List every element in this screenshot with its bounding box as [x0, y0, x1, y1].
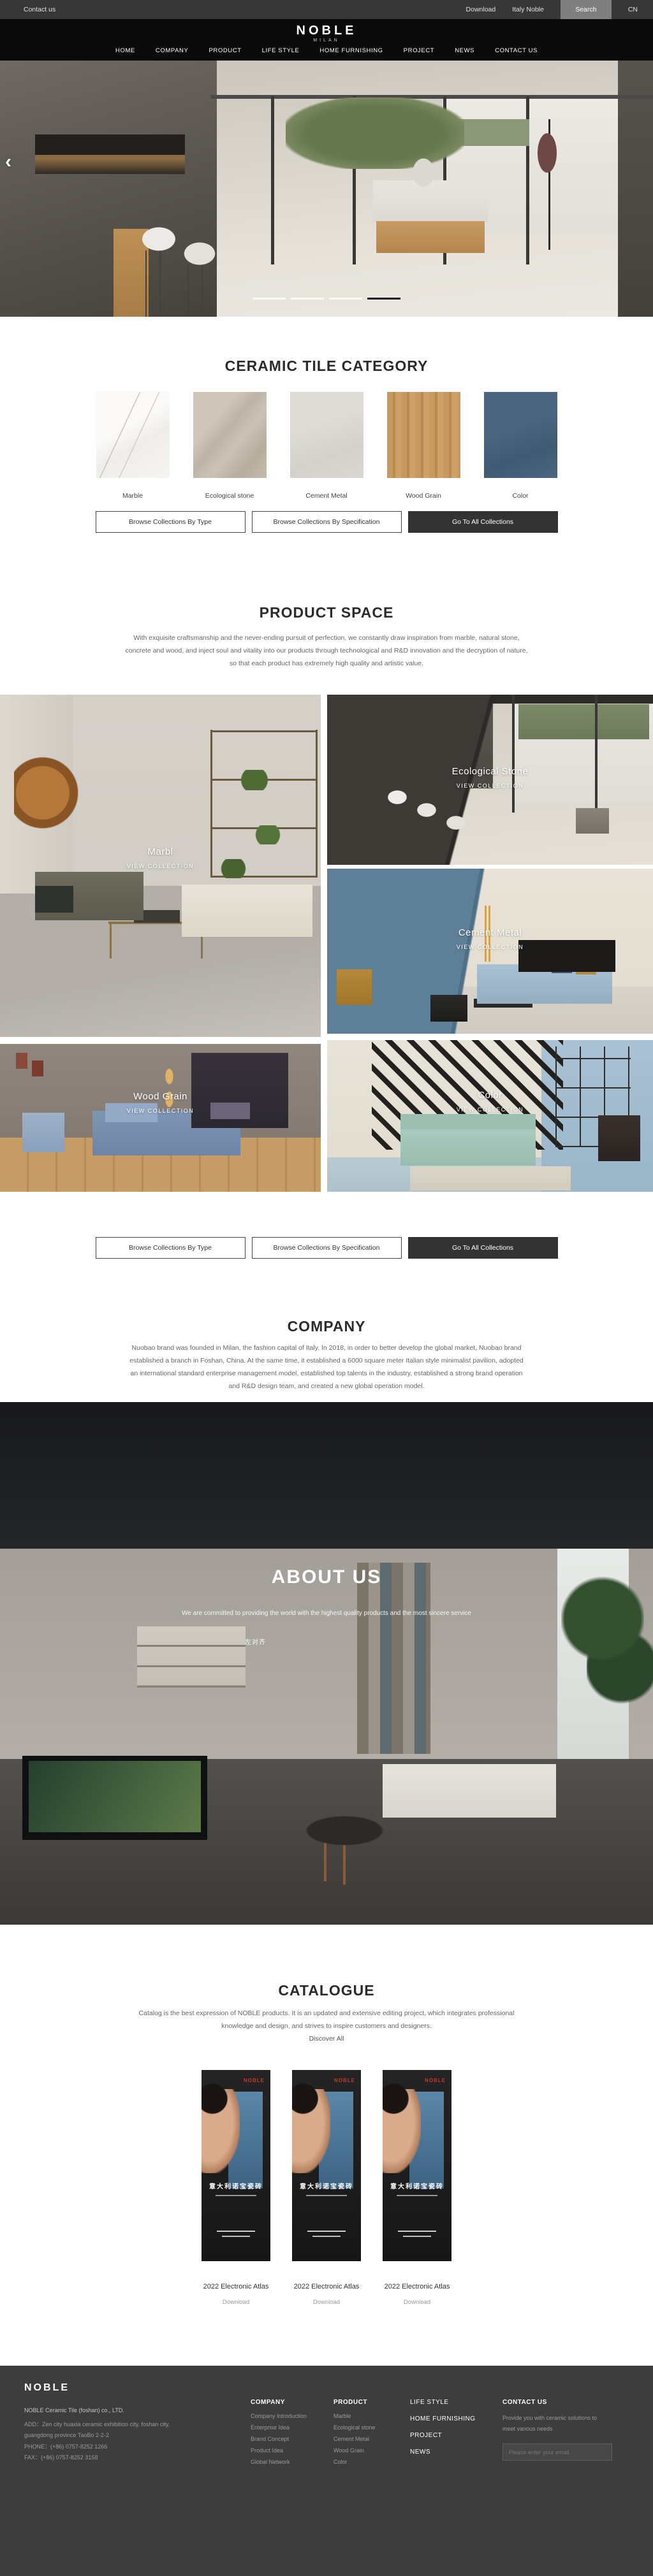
swatch-cement-metal-item: Cement Metal: [290, 392, 363, 500]
footer-link-company-introduction[interactable]: Company Introduction: [251, 2413, 307, 2419]
footer-link-cement-metal[interactable]: Cement Metal: [334, 2436, 376, 2442]
catalogue-covers-row: NOBLE 意大利诺宝瓷砖 2022 Electronic Atlas Down…: [0, 2070, 653, 2306]
footer-brand-logo[interactable]: NOBLE: [24, 2382, 70, 2394]
footer-link-brand-concept[interactable]: Brand Concept: [251, 2436, 307, 2442]
carousel-dot-4-active[interactable]: [367, 298, 400, 300]
tile-scene-wood-grain[interactable]: Wood Grain VIEW COLLECTION: [0, 1044, 321, 1192]
footer-link-color[interactable]: Color: [334, 2459, 376, 2465]
swatch-color-label: Color: [512, 492, 528, 500]
swatch-eco-stone-image[interactable]: [193, 392, 267, 478]
nav-home[interactable]: HOME: [115, 47, 135, 54]
carousel-dot-1[interactable]: [253, 298, 286, 300]
carousel-dot-3[interactable]: [329, 298, 362, 300]
cover-chinese-title: 意大利诺宝瓷砖: [292, 2181, 361, 2190]
marbl-caption[interactable]: Marbl VIEW COLLECTION: [0, 846, 321, 869]
nav-contact-us[interactable]: CONTACT US: [495, 47, 538, 54]
contact-us-link[interactable]: Contact us: [0, 6, 55, 13]
browse-by-spec-button-2[interactable]: Browse Collections By Specification: [252, 1237, 402, 1259]
eco-stone-name: Ecological Stone: [327, 766, 653, 777]
catalogue-cover-image-2[interactable]: NOBLE 意大利诺宝瓷砖: [292, 2070, 361, 2261]
product-space-paragraph: With exquisite craftsmanship and the nev…: [0, 632, 653, 670]
about-us-title: ABOUT US: [0, 1567, 653, 1588]
footer-phone: PHONE：(+86) 0757-8252 1266: [24, 2442, 172, 2453]
discover-all-link[interactable]: Discover All: [0, 2035, 653, 2043]
catalogue-download-link-3[interactable]: Download: [404, 2299, 430, 2306]
tile-scene-eco-stone[interactable]: Ecological Stone VIEW COLLECTION: [327, 695, 653, 865]
carousel-dot-2[interactable]: [291, 298, 324, 300]
company-section: COMPANY Nuobao brand was founded in Mila…: [0, 1294, 653, 1402]
footer-link-marble[interactable]: Marble: [334, 2413, 376, 2419]
footer-column-product: PRODUCT Marble Ecological stone Cement M…: [334, 2399, 376, 2470]
swatch-marble-item: Marble: [96, 392, 170, 500]
hero-carousel-image: ‹: [0, 61, 653, 317]
footer-link-life-style[interactable]: LIFE STYLE: [410, 2399, 476, 2406]
swatch-cement-metal-image[interactable]: [290, 392, 363, 478]
tile-scene-cement-metal[interactable]: Cement Metal VIEW COLLECTION: [327, 869, 653, 1034]
italy-noble-link[interactable]: Italy Noble: [512, 6, 544, 13]
cover-chinese-title: 意大利诺宝瓷砖: [202, 2181, 270, 2190]
cement-metal-name: Cement Metal: [327, 927, 653, 938]
catalogue-item-title-2: 2022 Electronic Atlas: [294, 2283, 360, 2290]
footer-link-news[interactable]: NEWS: [410, 2449, 476, 2456]
catalogue-download-link-2[interactable]: Download: [313, 2299, 340, 2306]
search-button[interactable]: Search: [561, 0, 612, 19]
site-footer: NOBLE NOBLE Ceramic Tile (foshan) co., L…: [0, 2366, 653, 2576]
footer-link-wood-grain[interactable]: Wood Grain: [334, 2447, 376, 2454]
footer-column-company: COMPANY Company Introduction Enterprise …: [251, 2399, 307, 2470]
swatch-marble-image[interactable]: [96, 392, 170, 478]
footer-link-product-idea[interactable]: Product Idea: [251, 2447, 307, 2454]
wood-grain-view-collection-link[interactable]: VIEW COLLECTION: [0, 1108, 321, 1114]
marbl-view-collection-link[interactable]: VIEW COLLECTION: [0, 863, 321, 869]
footer-section-links: LIFE STYLE HOME FURNISHING PROJECT NEWS: [410, 2399, 476, 2465]
nav-product[interactable]: PRODUCT: [209, 47, 241, 54]
footer-fax: FAX：(+86) 0757-8252 3158: [24, 2452, 172, 2464]
collection-buttons-section-2: Browse Collections By Type Browse Collec…: [0, 1192, 653, 1294]
ceramic-tile-category-section: CERAMIC TILE CATEGORY Marble Ecological …: [0, 317, 653, 554]
footer-contact-text: Provide you with ceramic solutions to me…: [503, 2413, 598, 2435]
catalogue-item-2: NOBLE 意大利诺宝瓷砖 2022 Electronic Atlas Down…: [292, 2070, 361, 2306]
nav-project[interactable]: PROJECT: [404, 47, 435, 54]
catalogue-item-1: NOBLE 意大利诺宝瓷砖 2022 Electronic Atlas Down…: [202, 2070, 270, 2306]
cement-metal-caption[interactable]: Cement Metal VIEW COLLECTION: [327, 927, 653, 950]
nav-life-style[interactable]: LIFE STYLE: [262, 47, 300, 54]
footer-link-global-network[interactable]: Global Network: [251, 2459, 307, 2465]
about-us-align-note: 左对齐: [245, 1637, 266, 1646]
about-us-subtitle: We are committed to providing the world …: [161, 1607, 492, 1619]
email-input[interactable]: [503, 2443, 612, 2461]
color-view-collection-link[interactable]: VIEW COLLECTION: [327, 1106, 653, 1113]
catalogue-cover-image-1[interactable]: NOBLE 意大利诺宝瓷砖: [202, 2070, 270, 2261]
footer-company-info: NOBLE Ceramic Tile (foshan) co., LTD. AD…: [24, 2405, 172, 2464]
swatch-color-item: Color: [484, 392, 557, 500]
swatch-marble-label: Marble: [122, 492, 143, 500]
cement-metal-view-collection-link[interactable]: VIEW COLLECTION: [327, 944, 653, 950]
swatch-cement-metal-label: Cement Metal: [305, 492, 347, 500]
swatch-wood-grain-item: Wood Grain: [387, 392, 460, 500]
footer-contact-column: CONTACT US Provide you with ceramic solu…: [503, 2399, 630, 2461]
wood-grain-name: Wood Grain: [0, 1091, 321, 1102]
catalogue-item-3: NOBLE 意大利诺宝瓷砖 2022 Electronic Atlas Down…: [383, 2070, 451, 2306]
download-link[interactable]: Download: [466, 6, 496, 13]
tile-swatch-row: Marble Ecological stone Cement Metal Woo…: [0, 392, 653, 500]
footer-company-heading: COMPANY: [251, 2399, 307, 2406]
browse-by-type-button-2[interactable]: Browse Collections By Type: [96, 1237, 246, 1259]
swatch-wood-grain-image[interactable]: [387, 392, 460, 478]
footer-link-project[interactable]: PROJECT: [410, 2432, 476, 2439]
brand-logo-subtitle: MILAN: [313, 38, 339, 43]
marbl-name: Marbl: [0, 846, 321, 857]
go-to-all-collections-button[interactable]: Go To All Collections: [408, 511, 558, 533]
swatch-color-image[interactable]: [484, 392, 557, 478]
footer-link-ecological-stone[interactable]: Ecological stone: [334, 2424, 376, 2431]
brand-logo[interactable]: NOBLE: [297, 24, 357, 38]
color-name: Color: [327, 1090, 653, 1101]
category-section-title: CERAMIC TILE CATEGORY: [0, 358, 653, 375]
eco-stone-caption[interactable]: Ecological Stone VIEW COLLECTION: [327, 766, 653, 789]
catalogue-section: CATALOGUE Catalog is the best expression…: [0, 1925, 653, 2366]
tile-scene-color[interactable]: Color VIEW COLLECTION: [327, 1040, 653, 1192]
footer-link-enterprise-idea[interactable]: Enterprise Idea: [251, 2424, 307, 2431]
cover-brand-logo: NOBLE: [334, 2078, 355, 2083]
color-caption[interactable]: Color VIEW COLLECTION: [327, 1090, 653, 1113]
company-title: COMPANY: [0, 1318, 653, 1335]
footer-address: ADD：Zen city huaxia ceramic exhibition c…: [24, 2419, 172, 2442]
catalogue-paragraph: Catalog is the best expression of NOBLE …: [0, 2008, 653, 2033]
footer-link-home-furnishing[interactable]: HOME FURNISHING: [410, 2415, 476, 2422]
product-space-section: PRODUCT SPACE With exquisite craftsmansh…: [0, 554, 653, 693]
tile-scene-marbl[interactable]: Marbl VIEW COLLECTION: [0, 695, 321, 1037]
site-header: NOBLE MILAN HOME COMPANY PRODUCT LIFE ST…: [0, 19, 653, 61]
catalogue-download-link-1[interactable]: Download: [223, 2299, 249, 2306]
swatch-eco-stone-item: Ecological stone: [193, 392, 267, 500]
cover-brand-logo: NOBLE: [244, 2078, 265, 2083]
collection-buttons-row-2: Browse Collections By Type Browse Collec…: [0, 1237, 653, 1259]
product-space-grid: Marbl VIEW COLLECTION Wood Grain VIEW CO…: [0, 693, 653, 1192]
main-nav: HOME COMPANY PRODUCT LIFE STYLE HOME FUR…: [115, 47, 538, 54]
catalogue-title: CATALOGUE: [0, 1982, 653, 1999]
swatch-eco-stone-label: Ecological stone: [205, 492, 254, 500]
go-to-all-collections-button-2[interactable]: Go To All Collections: [408, 1237, 558, 1259]
cover-brand-logo: NOBLE: [425, 2078, 446, 2083]
company-paragraph: Nuobao brand was founded in Milan, the f…: [0, 1342, 653, 1393]
top-utility-bar: Contact us Download Italy Noble Search C…: [0, 0, 653, 19]
carousel-indicators: [0, 298, 653, 300]
catalogue-item-title-1: 2022 Electronic Atlas: [203, 2283, 269, 2290]
catalogue-item-title-3: 2022 Electronic Atlas: [385, 2283, 450, 2290]
about-us-banner-image: ABOUT US We are committed to providing t…: [0, 1402, 653, 1925]
language-switch-cn[interactable]: CN: [628, 6, 638, 13]
footer-company-name: NOBLE Ceramic Tile (foshan) co., LTD.: [24, 2405, 172, 2417]
footer-product-heading: PRODUCT: [334, 2399, 376, 2406]
wood-grain-caption[interactable]: Wood Grain VIEW COLLECTION: [0, 1091, 321, 1114]
eco-stone-view-collection-link[interactable]: VIEW COLLECTION: [327, 783, 653, 789]
nav-news[interactable]: NEWS: [455, 47, 474, 54]
catalogue-cover-image-3[interactable]: NOBLE 意大利诺宝瓷砖: [383, 2070, 451, 2261]
browse-by-type-button[interactable]: Browse Collections By Type: [96, 511, 246, 533]
swatch-wood-grain-label: Wood Grain: [406, 492, 441, 500]
browse-by-spec-button[interactable]: Browse Collections By Specification: [252, 511, 402, 533]
nav-home-furnishing[interactable]: HOME FURNISHING: [319, 47, 383, 54]
footer-contact-heading: CONTACT US: [503, 2399, 630, 2406]
collection-buttons-row-1: Browse Collections By Type Browse Collec…: [0, 511, 653, 533]
nav-company[interactable]: COMPANY: [156, 47, 189, 54]
carousel-prev-arrow-icon[interactable]: ‹: [5, 151, 11, 173]
cover-chinese-title: 意大利诺宝瓷砖: [383, 2181, 451, 2190]
product-space-title: PRODUCT SPACE: [0, 604, 653, 621]
